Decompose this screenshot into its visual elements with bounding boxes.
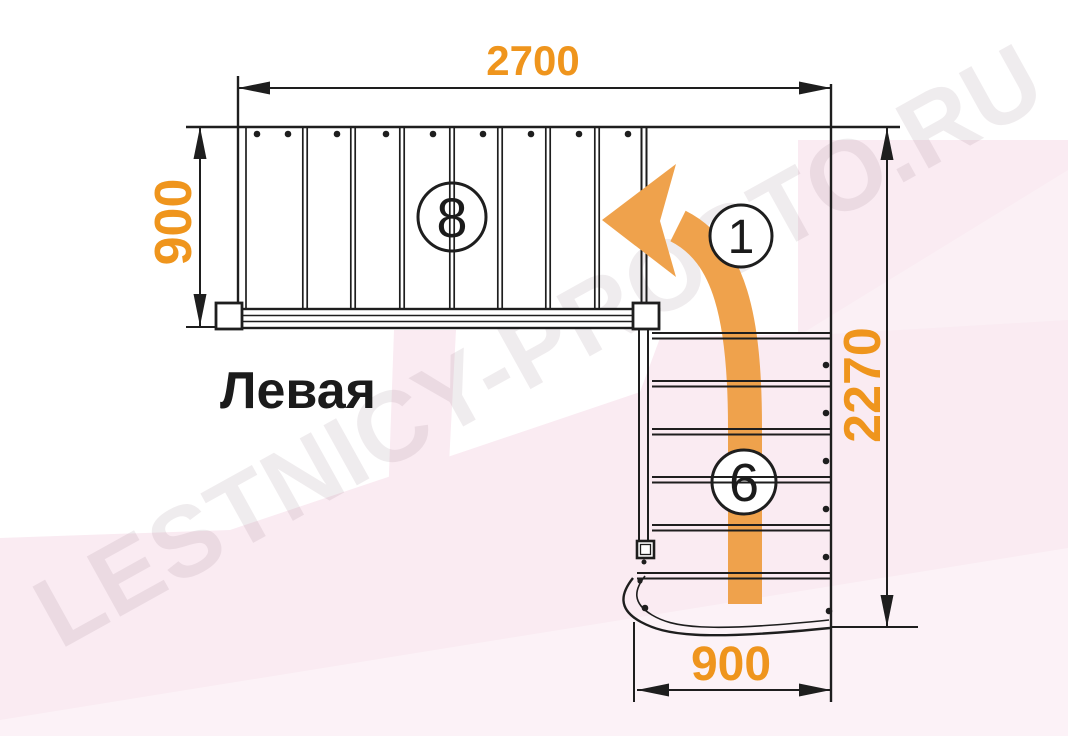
turn-number: 1 [728,211,755,264]
newel-post-left [216,303,242,329]
upper-flight-handrail-band [217,309,659,328]
upper-flight-step-count: 8 [436,186,467,249]
dim-label-top-width: 2700 [486,37,579,84]
stringer-foot-post [637,541,654,558]
dim-label-bottom-width: 900 [691,638,771,691]
dim-label-left-depth: 900 [145,179,203,266]
newel-post-corner [633,303,659,329]
stair-plan-svg: LESTNICY-PROSTO.RU [0,0,1068,736]
variant-title: Левая [220,362,376,420]
lower-flight-step-count: 6 [729,453,759,513]
dim-label-right-height: 2270 [834,327,892,443]
stair-plan-diagram: LESTNICY-PROSTO.RU [0,0,1068,736]
